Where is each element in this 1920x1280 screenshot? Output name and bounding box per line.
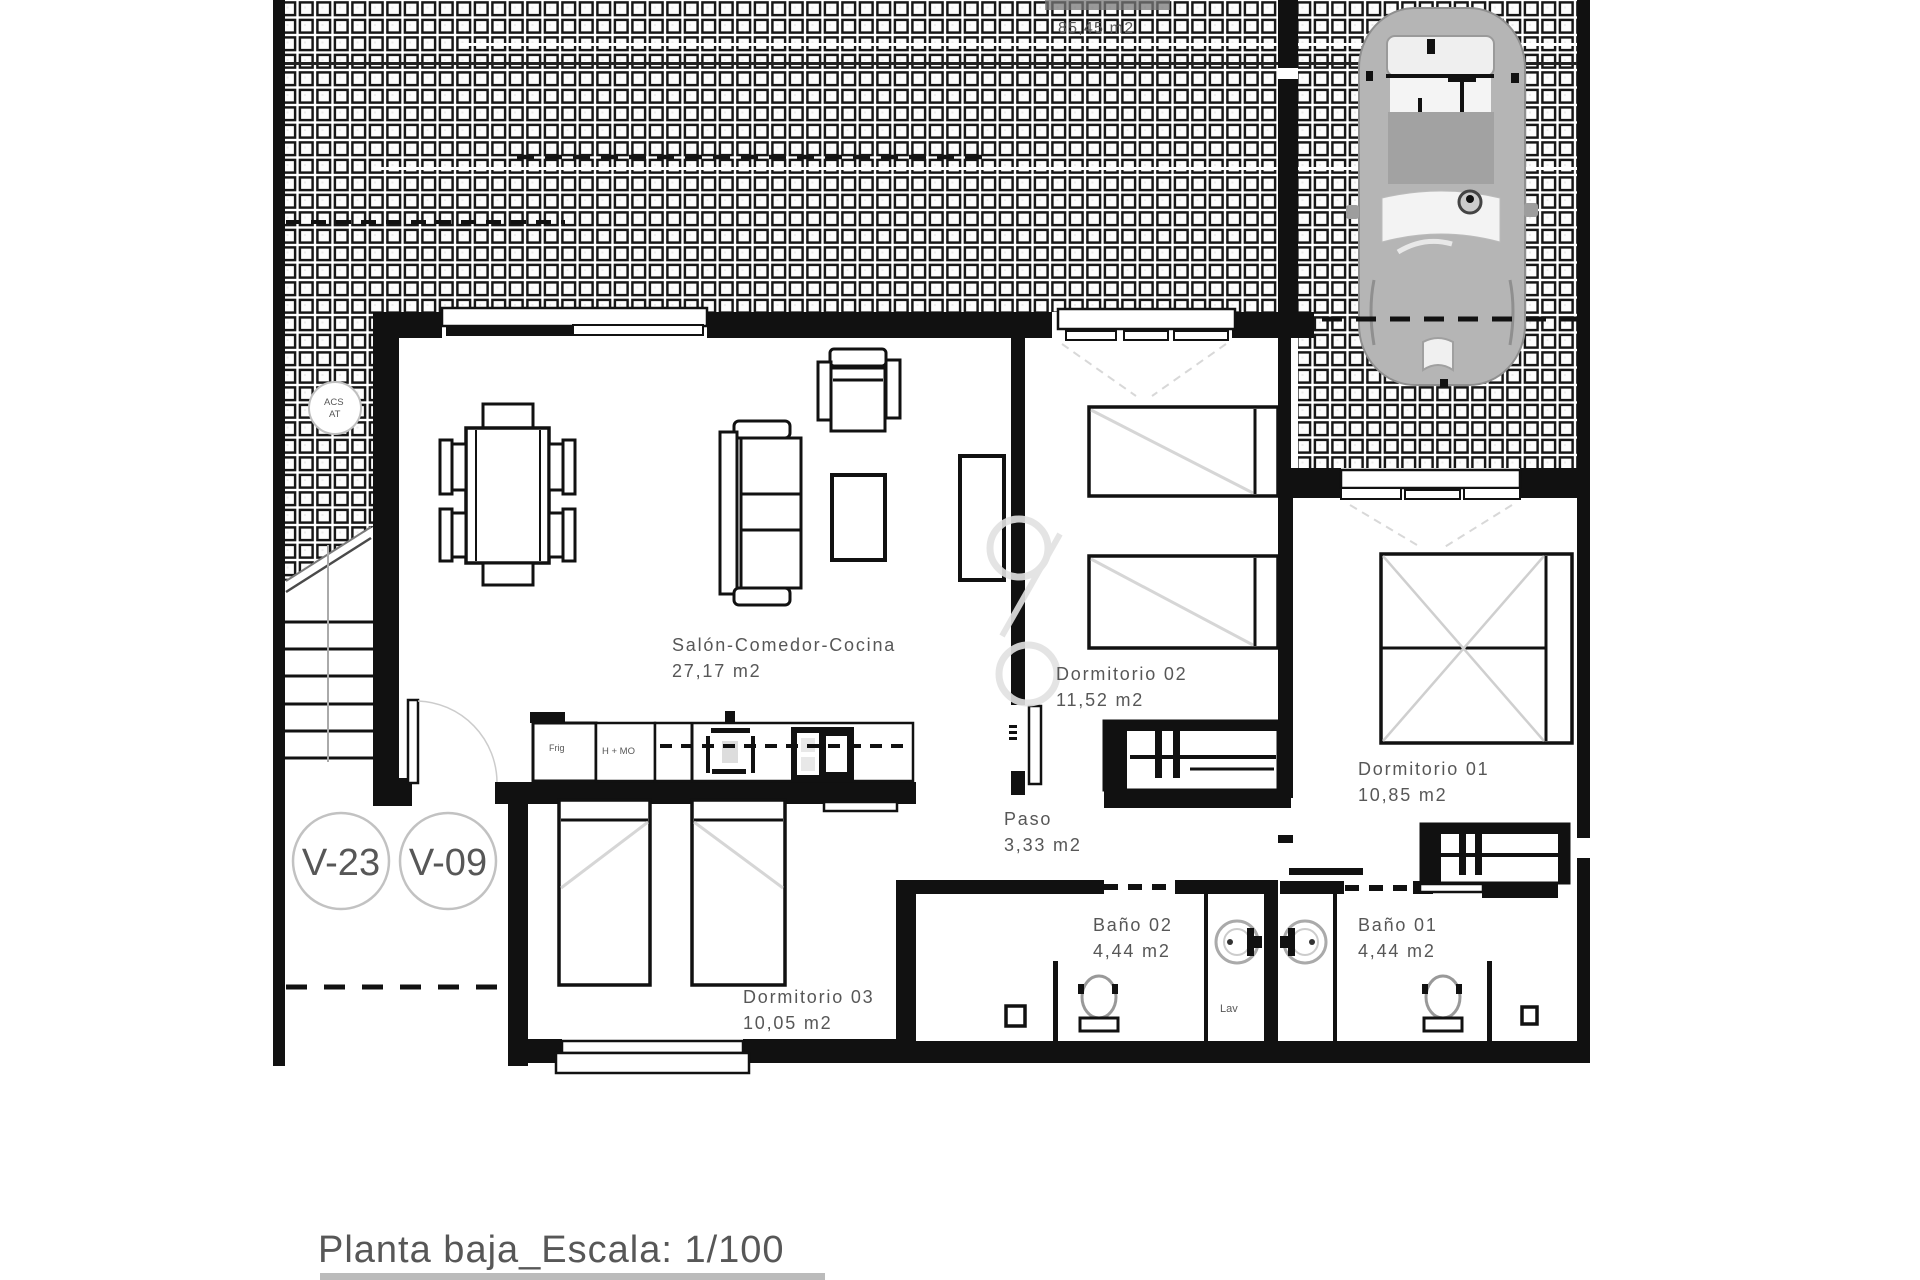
- svg-text:85,45 m2: 85,45 m2: [1058, 20, 1134, 37]
- svg-text:V-09: V-09: [409, 842, 487, 884]
- svg-text:Dormitorio 03: Dormitorio 03: [743, 987, 874, 1007]
- svg-text:Lav: Lav: [1220, 1003, 1238, 1015]
- svg-text:V-23: V-23: [302, 842, 380, 884]
- svg-text:AT: AT: [329, 409, 341, 420]
- svg-text:27,17 m2: 27,17 m2: [672, 661, 761, 681]
- svg-text:Salón-Comedor-Cocina: Salón-Comedor-Cocina: [672, 635, 896, 655]
- svg-text:Dormitorio 02: Dormitorio 02: [1056, 664, 1187, 684]
- svg-text:Baño 01: Baño 01: [1358, 915, 1438, 935]
- svg-text:10,85 m2: 10,85 m2: [1358, 785, 1447, 805]
- svg-text:Paso: Paso: [1004, 809, 1052, 829]
- svg-text:Planta baja_Escala: 1/100: Planta baja_Escala: 1/100: [318, 1229, 785, 1271]
- svg-text:Dormitorio 01: Dormitorio 01: [1358, 759, 1489, 779]
- svg-text:10,05 m2: 10,05 m2: [743, 1013, 832, 1033]
- svg-text:Baño 02: Baño 02: [1093, 915, 1173, 935]
- svg-text:11,52 m2: 11,52 m2: [1056, 690, 1144, 710]
- svg-text:4,44 m2: 4,44 m2: [1358, 941, 1436, 961]
- svg-text:H + MO: H + MO: [602, 746, 635, 757]
- svg-text:Frig: Frig: [549, 743, 565, 753]
- svg-text:4,44 m2: 4,44 m2: [1093, 941, 1171, 961]
- svg-text:3,33 m2: 3,33 m2: [1004, 835, 1082, 855]
- svg-text:ACS: ACS: [324, 397, 344, 408]
